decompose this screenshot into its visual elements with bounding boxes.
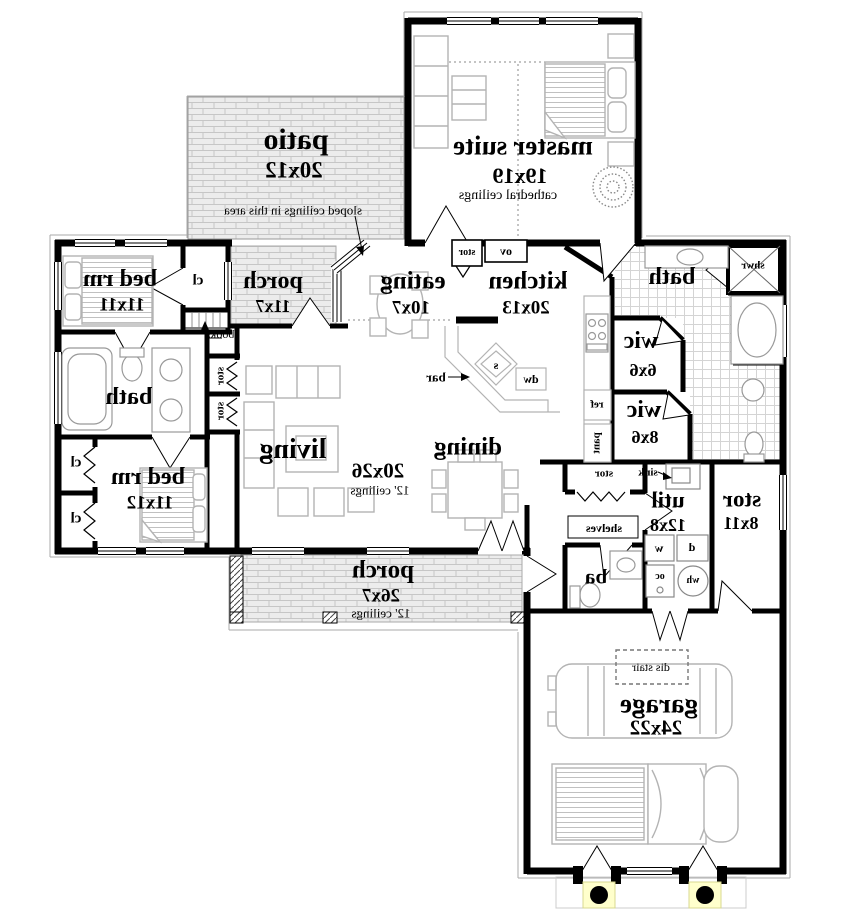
- label-wic2: wic: [627, 398, 662, 422]
- stor-cab-mark: [456, 266, 470, 277]
- closet3-bifold: [84, 503, 95, 539]
- pickup-truck: [552, 764, 738, 844]
- sofa-top: [276, 366, 340, 398]
- round-column: [696, 886, 714, 904]
- closet2-bifold: [84, 447, 95, 483]
- label-porch-front: porch: [352, 558, 414, 583]
- garage-front-door-left: [582, 846, 612, 871]
- master-door: [425, 206, 468, 243]
- label-bath-hall: bath: [106, 385, 153, 409]
- round-column: [590, 886, 608, 904]
- label-porch-front-note: 12' ceilings: [351, 607, 410, 620]
- label-garage-dims: 24x22: [630, 718, 683, 739]
- label-closet-1: cl: [193, 274, 204, 289]
- stor-closet-bifold-a: [227, 362, 237, 390]
- garage-hall-door-a: [652, 611, 670, 640]
- corner-table: [246, 366, 272, 394]
- chair: [278, 488, 308, 516]
- label-sink: sink: [638, 468, 658, 479]
- french-door-right: [502, 521, 524, 551]
- label-kitchen: kitchen: [488, 269, 567, 294]
- label-shower: shwr: [741, 261, 764, 272]
- label-closet-2: cl: [71, 456, 82, 471]
- label-living-dims: 20x26: [352, 461, 405, 482]
- label-patio-note: sloped ceilings in this area: [224, 204, 362, 217]
- label-stor-closet-a: stor: [216, 367, 227, 385]
- master-toilet-tank: [744, 454, 764, 462]
- label-washer: w: [655, 542, 664, 554]
- stor-closet-bifold-b: [227, 398, 237, 426]
- cooktop-icon: [586, 314, 608, 352]
- label-living: living: [260, 436, 327, 464]
- label-living-note: 12' ceilings: [350, 484, 409, 497]
- label-porch-side: porch: [243, 269, 303, 293]
- label-oc: oc: [655, 572, 664, 582]
- label-ba: ba: [585, 567, 607, 588]
- label-master-suite-dims: 19x19: [493, 165, 548, 187]
- nightstand: [608, 34, 634, 58]
- label-bed-rm-1-dims: 11x11: [99, 296, 144, 315]
- master-tub: [731, 296, 783, 364]
- toilet-tank: [120, 348, 144, 357]
- label-master-suite-note: cathedral ceilings: [459, 189, 557, 203]
- label-stor-room: stor: [723, 488, 761, 511]
- front-door: [527, 556, 556, 592]
- label-eating-dims: 10x7: [392, 299, 430, 318]
- label-porch-side-dims: 11x7: [255, 297, 290, 315]
- label-bed-rm-2-dims: 11x12: [127, 494, 173, 513]
- garage-hall-door-b: [670, 611, 688, 640]
- label-stor-closet-b: stor: [216, 402, 227, 420]
- master-toilet-bowl: [745, 432, 763, 456]
- label-bath-master: bath: [649, 265, 696, 289]
- label-ref: ref: [590, 400, 603, 411]
- label-master-suite: master suite: [453, 133, 593, 160]
- stor-garage-door: [718, 581, 752, 611]
- label-wic2-dims: 8x6: [632, 428, 659, 446]
- label-dining: dining: [434, 435, 502, 460]
- label-eating: eating: [380, 269, 445, 294]
- dining-table: [432, 450, 518, 530]
- label-kitchen-dims: 20x13: [502, 299, 550, 318]
- label-oven: ov: [500, 245, 512, 257]
- label-closet-3: cl: [71, 512, 82, 527]
- label-bed-rm-2: bed rm: [111, 465, 185, 489]
- label-stor-room-dims: 8x11: [723, 514, 758, 532]
- nightstand: [608, 142, 634, 166]
- label-garage: garage: [620, 691, 698, 718]
- label-util: util: [651, 489, 684, 512]
- floor-plan: master suite 19x19 cathedral ceilings pa…: [0, 0, 845, 914]
- label-bed-rm-1: bed rm: [83, 267, 157, 291]
- label-stor-cab: stor: [459, 248, 476, 258]
- label-island-sink: s: [494, 359, 499, 371]
- toilet-bowl: [122, 355, 142, 381]
- pedestal-sink: [742, 379, 764, 401]
- label-books: books: [206, 328, 235, 340]
- label-pantry: pant: [592, 432, 603, 453]
- label-dishwasher: dw: [523, 373, 538, 385]
- label-bar: bar: [426, 371, 446, 384]
- master-table: [452, 76, 486, 120]
- label-patio-dims: 20x12: [265, 159, 323, 182]
- chair: [314, 488, 344, 516]
- plant: [593, 167, 633, 207]
- label-shelves: shelves: [586, 522, 622, 534]
- label-porch-front-dims: 26x7: [362, 587, 400, 606]
- label-hall-stor: stor: [595, 469, 613, 480]
- hall-stor-bifold: [577, 492, 625, 501]
- garage-front-door-right: [688, 846, 718, 871]
- label-wic1: wic: [624, 329, 659, 353]
- label-dryer: d: [689, 541, 696, 553]
- label-patio: patio: [263, 125, 328, 155]
- label-wic1-dims: 6x6: [630, 361, 657, 379]
- label-util-dims: 12x8: [650, 516, 686, 534]
- label-water-heater: wh: [687, 576, 700, 586]
- floorplan-drawing: [0, 0, 845, 914]
- label-dis-stair: dis stair: [632, 661, 670, 673]
